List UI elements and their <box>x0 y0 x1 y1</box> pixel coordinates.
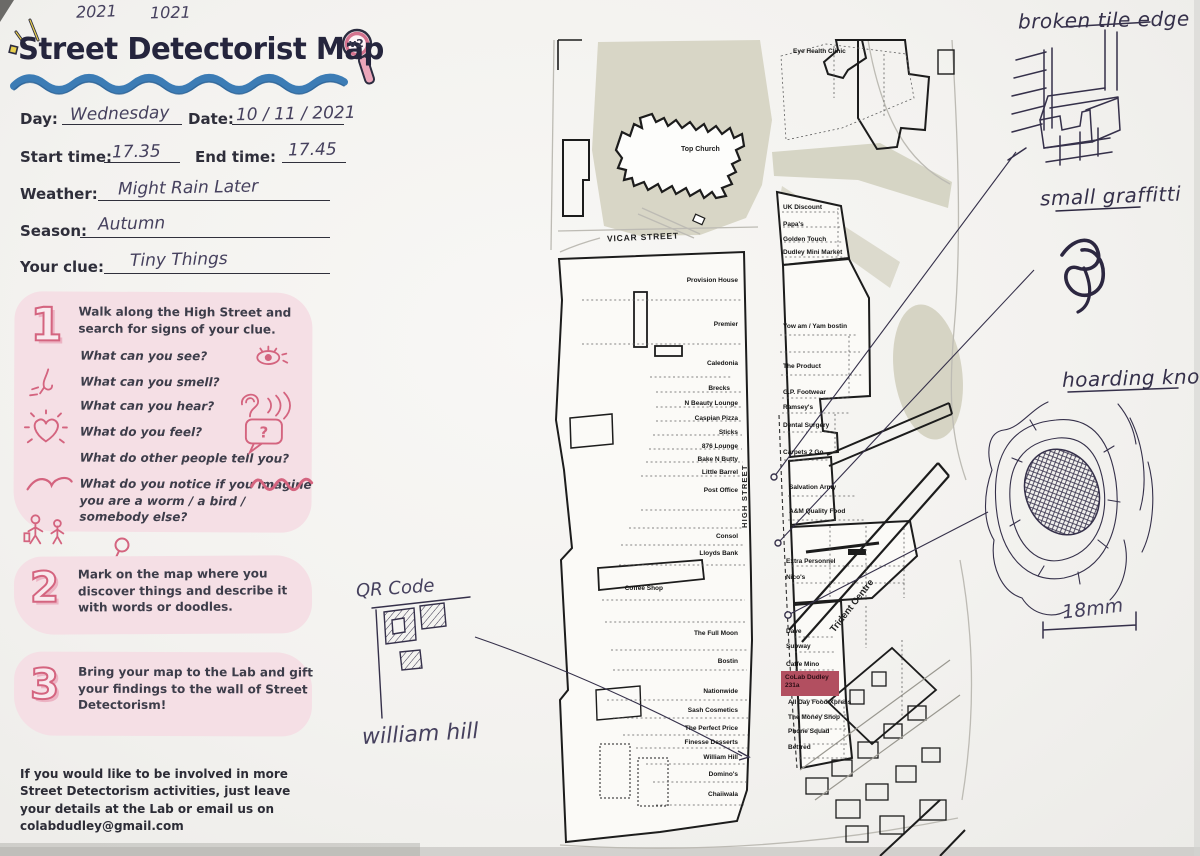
shop-label: Ramsey's <box>783 404 813 411</box>
shop-label: Bostin <box>718 658 738 665</box>
shop-label: Salvation Army <box>789 484 836 491</box>
start-time-label: Start time: <box>20 148 112 166</box>
shop-label: Nico's <box>786 574 805 581</box>
shop-label: Post Office <box>704 487 738 494</box>
shop-label: The Product <box>783 363 821 370</box>
start-time-value: 17.35 <box>112 141 161 162</box>
shop-label: Sash Cosmetics <box>688 707 738 714</box>
shop-label: The Perfect Price <box>685 725 738 732</box>
shop-label: Bake N Butty <box>698 456 738 463</box>
season-value: Autumn <box>98 213 166 234</box>
step3-text: Bring your map to the Lab and gift your … <box>78 664 318 714</box>
scribble-code: 1021 <box>150 3 191 23</box>
green-blob <box>885 300 971 444</box>
step1-number: 1 <box>30 301 62 347</box>
shop-label: Caledonia <box>707 360 738 367</box>
shop-label: Golden Touch <box>783 236 826 243</box>
shop-label: A&M Quality Food <box>789 508 845 515</box>
map-base <box>551 40 972 856</box>
shop-label: Nationwide <box>703 688 738 695</box>
question-mark: ? <box>259 424 268 442</box>
step1-intro: Walk along the High Street and search fo… <box>78 304 312 338</box>
shop-label: Provision House <box>687 277 738 284</box>
graffiti-sketch <box>1056 207 1140 312</box>
shop-label: N Beauty Lounge <box>685 400 738 407</box>
end-time-value: 17.45 <box>288 139 337 160</box>
shop-label: Domino's <box>709 771 738 778</box>
shop-label: Caspian Pizza <box>695 415 738 422</box>
shop-label: UK Discount <box>783 204 822 211</box>
wave-underline <box>14 78 344 94</box>
end-time-label: End time: <box>195 148 276 166</box>
season-label: Season: <box>20 222 87 240</box>
broken-tile-sketch <box>1008 22 1150 165</box>
day-value: Wednesday <box>70 103 170 125</box>
weather-value: Might Rain Later <box>118 177 259 200</box>
step1-question-smell: What can you smell? <box>80 374 280 392</box>
clue-value: Tiny Things <box>130 249 228 271</box>
shop-label: Lloyds Bank <box>699 550 738 557</box>
shop-label: Brecks <box>708 385 730 392</box>
nose-icon <box>28 367 62 401</box>
step2-panel: 2 Mark on the map where you discover thi… <box>14 555 312 635</box>
shop-label: Extra Personnel <box>786 558 836 565</box>
colab-highlight: CoLab Dudley 231a <box>781 671 839 696</box>
eye-icon <box>252 342 292 368</box>
shop-label: Carpets 2 Go <box>783 449 823 456</box>
step1-panel: 1 Walk along the High Street and search … <box>13 291 312 533</box>
shop-label: Consol <box>716 533 738 540</box>
scribble-year: 2021 <box>76 1 117 21</box>
eye-clinic-building <box>824 40 866 78</box>
shop-label: Finesse Desserts <box>685 739 738 746</box>
shop-label: Subway <box>786 643 811 650</box>
step1-question-see: What can you see? <box>80 348 260 365</box>
shop-label: Papa's <box>783 221 804 228</box>
shop-label: Sticks <box>719 429 738 436</box>
shop-label: Premier <box>714 321 738 328</box>
shop-label: Phone Squad <box>788 728 830 735</box>
weather-label: Weather: <box>20 185 98 203</box>
shop-label: Dudley Mini Market <box>783 249 842 256</box>
shop-label: Eye Health Clinic <box>793 48 846 55</box>
worksheet-photo: 2021 1021 Street Detectorist Map v2 Day:… <box>0 0 1200 856</box>
far-right-building <box>858 40 929 149</box>
qr-sketch <box>372 597 470 718</box>
street-label-high: HIGH STREET <box>740 464 749 528</box>
step1-question-feel: What do you feel? <box>80 424 240 441</box>
step3-number: 3 <box>30 664 59 706</box>
shop-label: Betfred <box>788 744 811 751</box>
day-label: Day: <box>20 110 58 128</box>
church-label: Top Church <box>681 146 720 153</box>
date-label: Date: <box>188 110 234 128</box>
shop-label: The Full Moon <box>694 630 738 637</box>
colab-name: CoLab Dudley <box>785 674 839 682</box>
shop-label: All Day Food Xpress <box>788 699 851 706</box>
leader-lines <box>475 152 1034 760</box>
shop-label: Caffe Mino <box>786 661 819 668</box>
shop-label: Coffee Shop <box>625 585 663 592</box>
shop-label: William Hill <box>703 754 738 761</box>
annotation-knot: hoarding knot <box>1062 364 1200 392</box>
annotation-broken-tile: broken tile edge <box>1018 7 1190 34</box>
clue-label: Your clue: <box>20 258 104 276</box>
small-building <box>563 140 589 216</box>
colab-unit: 231a <box>785 682 839 690</box>
people-icon <box>23 511 73 545</box>
worm-icon <box>250 472 314 494</box>
shop-label: G.P. Footwear <box>783 389 826 396</box>
bird-icon <box>26 469 74 495</box>
version-badge: v2 <box>349 37 364 50</box>
shop-label: Yow am / Yam bostin <box>783 323 847 330</box>
page-title: Street Detectorist Map <box>18 32 384 67</box>
annotation-graffiti: small graffitti <box>1040 182 1182 211</box>
footer-contact-text: If you would like to be involved in more… <box>20 766 320 836</box>
date-value: 10 / 11 / 2021 <box>236 103 356 126</box>
speech-question-icon: ? <box>240 416 288 456</box>
step2-number: 2 <box>30 567 59 609</box>
shop-label: Dental Surgery <box>783 422 829 429</box>
shop-label: Dave <box>786 628 802 635</box>
shop-label: The Money Shop <box>788 714 840 721</box>
shop-label: 876 Lounge <box>702 443 738 450</box>
step1-question-hear: What can you hear? <box>80 398 260 415</box>
shop-label: Little Barrel <box>702 469 738 476</box>
heart-icon <box>24 409 68 449</box>
shop-label: Chaiiwala <box>708 791 738 798</box>
step2-text: Mark on the map where you discover thing… <box>78 565 314 616</box>
step3-panel: 3 Bring your map to the Lab and gift you… <box>14 651 312 736</box>
